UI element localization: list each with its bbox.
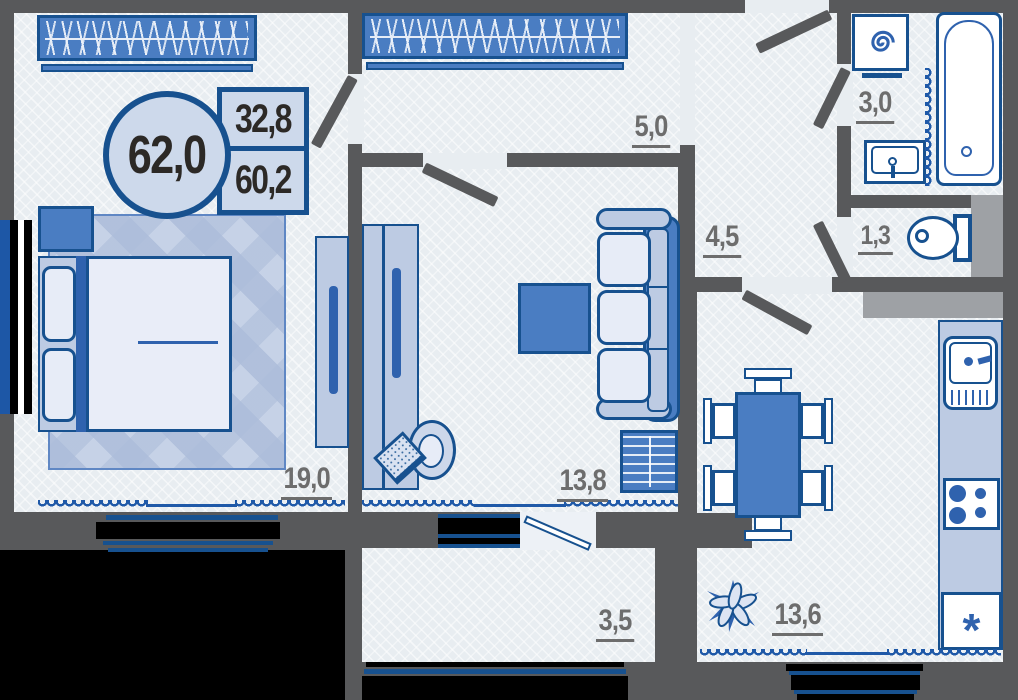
dining-table bbox=[735, 392, 801, 518]
kitchen-window-wave bbox=[700, 649, 807, 659]
area-label-bathroom: 3,0 bbox=[856, 88, 894, 124]
area-label-kitchen: 13,6 bbox=[772, 600, 823, 636]
chair-back bbox=[824, 398, 833, 444]
fridge: * bbox=[941, 592, 1002, 650]
bedroom-side-window bbox=[0, 220, 32, 414]
corridor-wardrobe-base bbox=[366, 62, 624, 70]
chair-seat bbox=[800, 470, 824, 506]
bedroom-railing-line bbox=[103, 541, 273, 545]
wall-block bbox=[678, 513, 752, 548]
table-pedestal-cap bbox=[744, 530, 792, 541]
living-window-mullion bbox=[474, 504, 566, 507]
sofa-cushion bbox=[597, 232, 651, 287]
area-label-wc: 1,3 bbox=[858, 222, 892, 255]
kitchen-window-mullion bbox=[805, 652, 889, 655]
desk-chair-seat bbox=[418, 434, 444, 468]
sofa-armrest bbox=[596, 208, 672, 230]
chair-back bbox=[703, 398, 712, 444]
badge-upper-cell: 32,8 bbox=[222, 92, 304, 151]
sofa-cushion bbox=[597, 290, 651, 345]
badge-lower-cell: 60,2 bbox=[222, 151, 304, 210]
lower-balcony-area bbox=[0, 550, 345, 700]
closet-handle bbox=[329, 286, 338, 394]
washing-machine bbox=[852, 14, 909, 71]
opening-corridor-hallway bbox=[680, 13, 695, 145]
bedroom-window-wave bbox=[235, 500, 345, 510]
table-pedestal-cap bbox=[744, 368, 792, 379]
area-label-hallway: 4,5 bbox=[703, 222, 741, 258]
area-badge-circle: 62,0 bbox=[103, 91, 231, 219]
doorway-entry bbox=[745, 0, 829, 13]
bedroom-window-wave bbox=[38, 500, 148, 510]
kitchen-railing-band bbox=[791, 675, 920, 690]
stove-burner bbox=[975, 488, 986, 499]
area-label-bedroom: 19,0 bbox=[281, 464, 332, 500]
chair-seat bbox=[800, 403, 824, 439]
kitchen-railing bbox=[786, 664, 923, 671]
corridor-wardrobe-hangers-icon bbox=[362, 13, 628, 59]
vent-shaft-wc bbox=[971, 195, 1003, 277]
badge-lower-value: 60,2 bbox=[235, 158, 291, 203]
tv-stand bbox=[620, 430, 678, 493]
living-window-wave bbox=[362, 500, 476, 510]
fridge-symbol-icon: * bbox=[963, 625, 981, 635]
bedroom-railing-band bbox=[96, 522, 280, 539]
bathtub-drain-icon bbox=[961, 146, 972, 157]
sofa-cushion bbox=[597, 348, 651, 403]
stove-burner bbox=[975, 507, 986, 518]
bedroom-railing-line bbox=[108, 548, 268, 552]
bedroom-window-mullion bbox=[146, 504, 237, 507]
table-pedestal-stem bbox=[754, 516, 782, 531]
loggia-railing-line bbox=[364, 669, 626, 674]
coffee-table bbox=[518, 283, 591, 354]
chair-back bbox=[703, 465, 712, 511]
sink-faucet-icon bbox=[888, 157, 897, 166]
kitchen-faucet-icon bbox=[964, 357, 973, 366]
doorway-kitchen bbox=[742, 277, 832, 294]
floor-plan: 32,8 60,2 62,0 bbox=[0, 0, 1018, 700]
wardrobe-hangers-icon bbox=[37, 15, 257, 61]
chair-seat bbox=[712, 470, 736, 506]
washing-machine-base bbox=[862, 73, 902, 78]
shower-curtain-wave bbox=[925, 68, 935, 186]
wardrobe-base bbox=[41, 64, 253, 72]
sink-faucet-stem bbox=[891, 166, 895, 178]
bed-pillow bbox=[42, 266, 76, 342]
plant-icon bbox=[702, 576, 764, 636]
closet-handle bbox=[392, 268, 401, 378]
bedroom-railing-line bbox=[106, 515, 278, 520]
bed-blanket bbox=[86, 256, 232, 432]
loggia-railing-band bbox=[362, 676, 628, 700]
nightstand bbox=[38, 206, 94, 252]
bed-fold-line bbox=[138, 341, 218, 344]
kitchen-railing-base bbox=[797, 694, 914, 700]
stove-burner bbox=[949, 507, 966, 524]
chair-back bbox=[824, 465, 833, 511]
badge-upper-value: 32,8 bbox=[235, 97, 291, 142]
badge-total-value: 62,0 bbox=[128, 124, 206, 186]
vent-shaft-kitchen bbox=[863, 292, 1003, 318]
sink-vent-lines bbox=[951, 390, 991, 405]
area-label-living: 13,8 bbox=[557, 466, 608, 502]
living-window-sill bbox=[438, 514, 520, 548]
chair-seat bbox=[712, 403, 736, 439]
loggia-railing bbox=[366, 662, 624, 667]
washing-machine-spiral-icon bbox=[855, 17, 906, 68]
stove-burner bbox=[949, 485, 966, 502]
area-label-corridor: 5,0 bbox=[632, 112, 670, 148]
toilet-flush-icon bbox=[915, 229, 929, 243]
bed-pillow bbox=[42, 348, 76, 422]
area-label-loggia: 3,5 bbox=[596, 606, 634, 642]
kitchen-window-wave bbox=[887, 649, 1001, 659]
